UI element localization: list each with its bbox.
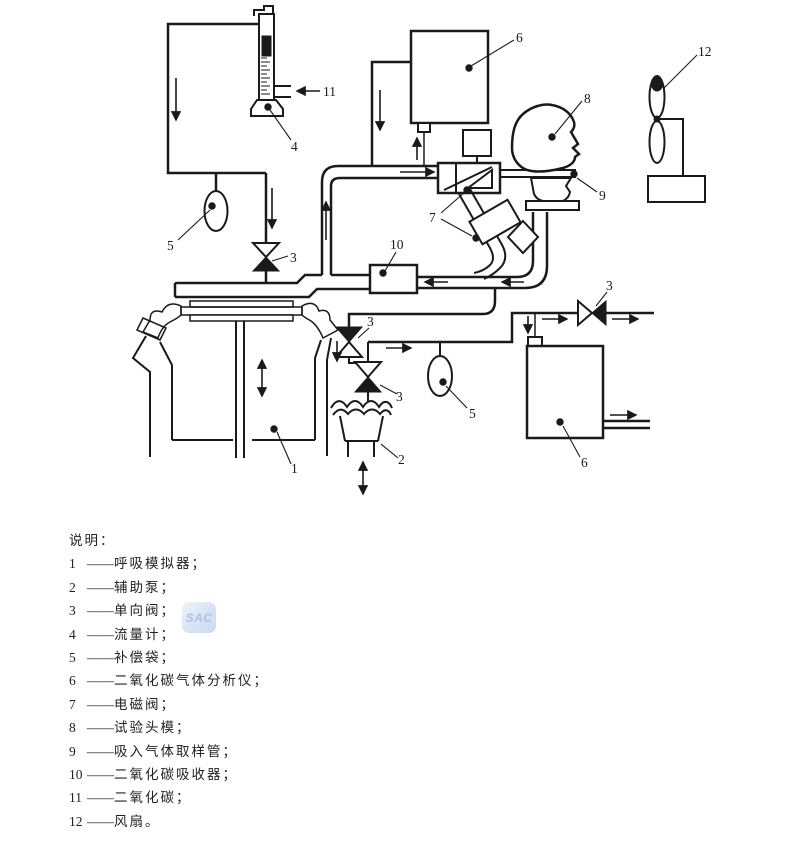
legend-item: 1——呼吸模拟器； bbox=[69, 552, 269, 575]
co2-absorber bbox=[370, 265, 417, 293]
label-fan: 12 bbox=[698, 44, 712, 59]
label-check-left: 3 bbox=[290, 250, 297, 265]
breathing-manifold bbox=[175, 275, 332, 297]
legend: 说明： 1——呼吸模拟器； 2——辅助泵； 3——单向阀； 4——流量计； 5—… bbox=[69, 529, 269, 833]
label-head: 8 bbox=[584, 91, 591, 106]
legend-item: 11——二氧化碳； bbox=[69, 786, 269, 809]
label-check-pump-upper: 3 bbox=[367, 314, 374, 329]
legend-item: 12——风扇。 bbox=[69, 810, 269, 833]
label-check-pump-lower: 3 bbox=[396, 389, 403, 404]
legend-item: 10——二氧化碳吸收器； bbox=[69, 763, 269, 786]
check-valve-left bbox=[253, 243, 279, 271]
co2-feed-pipe bbox=[168, 24, 266, 284]
label-bag-right: 5 bbox=[469, 406, 476, 421]
riser-pipe bbox=[322, 166, 438, 275]
label-co2-supply: 11 bbox=[323, 84, 336, 99]
flowmeter bbox=[251, 6, 291, 116]
legend-item: 2——辅助泵； bbox=[69, 576, 269, 599]
legend-title: 说明： bbox=[69, 529, 269, 552]
compensating-bag-left bbox=[205, 191, 228, 231]
legend-item: 7——电磁阀； bbox=[69, 693, 269, 716]
label-check-right: 3 bbox=[606, 278, 613, 293]
label-analyzer-right: 6 bbox=[581, 455, 588, 470]
fan bbox=[648, 76, 705, 202]
label-absorber: 10 bbox=[390, 237, 404, 252]
legend-item: 5——补偿袋； bbox=[69, 646, 269, 669]
figure-page: 6 8 12 11 4 9 7 5 3 10 3 3 3 5 2 1 6 SAC… bbox=[0, 0, 806, 846]
auxiliary-pump bbox=[331, 401, 392, 457]
label-flowmeter: 4 bbox=[291, 139, 298, 154]
apparatus-schematic: 6 8 12 11 4 9 7 5 3 10 3 3 3 5 2 1 6 bbox=[0, 0, 806, 535]
legend-item: 6——二氧化碳气体分析仪； bbox=[69, 669, 269, 692]
exhaust-line bbox=[349, 288, 654, 346]
label-bag-left: 5 bbox=[167, 238, 174, 253]
co2-analyzer-right bbox=[527, 346, 650, 438]
label-analyzer-top: 6 bbox=[516, 30, 523, 45]
test-head-and-mask bbox=[500, 104, 579, 210]
legend-item: 3——单向阀； bbox=[69, 599, 269, 622]
label-sampling-tube: 9 bbox=[599, 188, 606, 203]
legend-item: 8——试验头模； bbox=[69, 716, 269, 739]
legend-item: 4——流量计； bbox=[69, 623, 269, 646]
breathing-simulator bbox=[133, 301, 338, 458]
legend-item: 9——吸入气体取样管； bbox=[69, 740, 269, 763]
label-pump: 2 bbox=[398, 452, 405, 467]
label-simulator: 1 bbox=[291, 461, 298, 476]
check-valve-right bbox=[578, 301, 606, 325]
label-solenoid: 7 bbox=[429, 210, 436, 225]
